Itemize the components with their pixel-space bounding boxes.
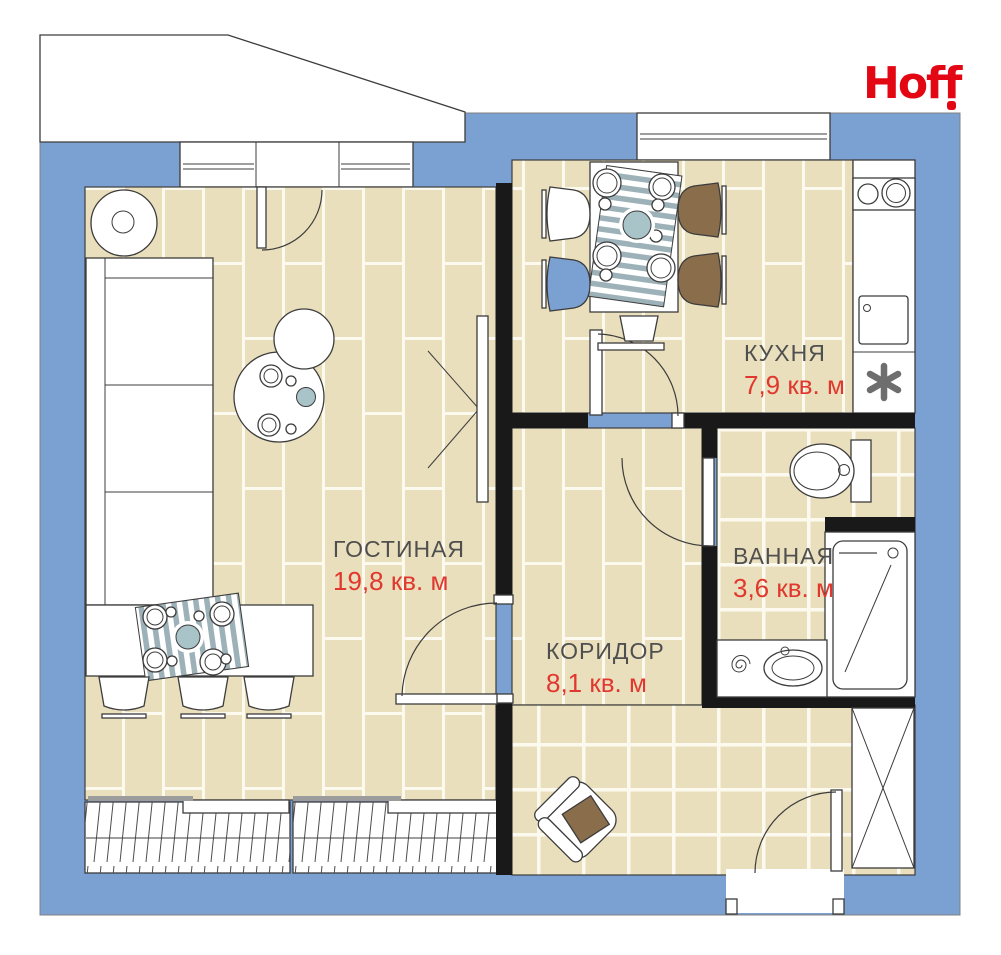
wardrobe-icon [852, 708, 914, 868]
kitchen-counter [853, 160, 915, 413]
corridor-floor [512, 428, 702, 705]
balcony-icon [40, 35, 465, 142]
hoff-logo-text: Hoff [863, 58, 960, 109]
floor-lamp-icon [91, 190, 157, 256]
window-icon [637, 113, 830, 160]
hoff-logo-dot [947, 101, 956, 110]
toilet-icon [790, 440, 871, 502]
washbasin-icon [717, 640, 827, 697]
floor-plan: ГОСТИНАЯ 19,8 кв. м КУХНЯ 7,9 кв. м ВАНН… [0, 0, 1001, 955]
sofa-icon [86, 258, 213, 605]
dining-table-icon [86, 593, 313, 681]
stove-icon [853, 178, 915, 210]
shower-icon [825, 517, 915, 697]
window-icon [180, 142, 413, 187]
floor-plan-svg [0, 0, 1001, 955]
kitchen-sink-icon [859, 296, 908, 344]
hoff-logo: Hoff [863, 58, 973, 118]
